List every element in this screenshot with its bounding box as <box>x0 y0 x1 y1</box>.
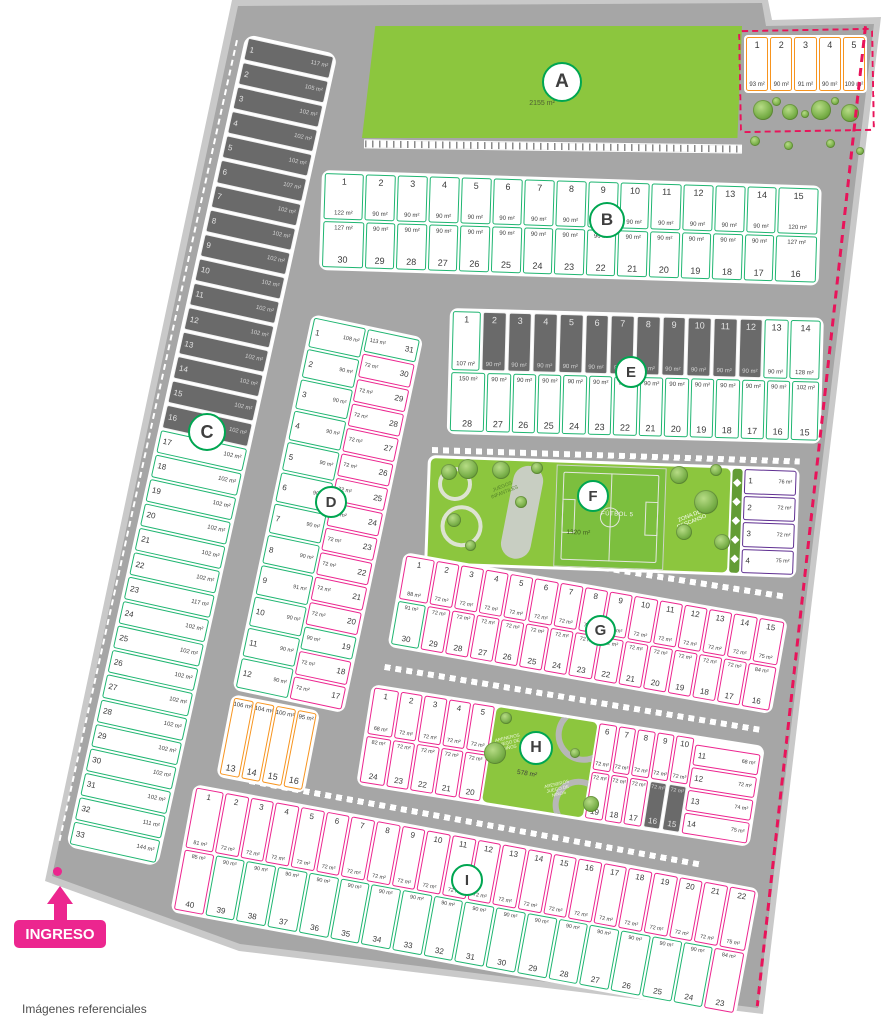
lot-area: 72 m² <box>372 874 387 882</box>
lot-area: 90 m² <box>593 380 608 386</box>
lot-area: 72 m² <box>653 771 667 778</box>
lot-number: 17 <box>162 438 172 448</box>
lot-number: 20 <box>465 788 475 797</box>
lot-area: 90 m² <box>563 364 578 370</box>
lot-number: 24 <box>367 518 377 528</box>
lot-number: 9 <box>671 321 676 330</box>
lot-area: 72 m² <box>220 846 235 854</box>
lot-area: 72 m² <box>612 779 626 786</box>
reference-note: Imágenes referenciales <box>22 1002 147 1016</box>
lot-b1-8[interactable]: 890 m² <box>555 180 586 227</box>
block-b-label: B <box>589 202 625 238</box>
lot-number: 4 <box>233 119 239 128</box>
lot-area: 128 m² <box>795 370 814 376</box>
lot-number: 18 <box>609 811 619 820</box>
lot-area: 72 m² <box>446 738 460 745</box>
lot-area: 90 m² <box>644 381 659 387</box>
lot-number: 29 <box>428 640 438 649</box>
lot-area: 122 m² <box>334 210 353 217</box>
lot-area: 102 m² <box>261 281 280 291</box>
entrance-point <box>53 867 62 876</box>
lot-area: 127 m² <box>334 225 353 232</box>
lot-number: 12 <box>746 323 756 332</box>
lot-area: 90 m² <box>404 213 420 219</box>
lot-area: 107 m² <box>282 183 301 193</box>
block-d-south: 13106 m²14104 m²15100 m²1695 m² <box>216 694 320 794</box>
bench-icon <box>732 517 740 525</box>
tree-icon <box>856 147 864 155</box>
lot-area: 72 m² <box>738 782 752 789</box>
lot-number: 28 <box>388 419 398 429</box>
lot-area: 117 m² <box>190 599 208 608</box>
lot-area: 72 m² <box>343 462 358 470</box>
lot-number: 13 <box>725 190 735 199</box>
lot-area: 72 m² <box>296 860 311 868</box>
lot-number: 23 <box>129 585 139 595</box>
lot-area: 102 m² <box>201 550 220 560</box>
lot-area: 90 m² <box>768 369 783 375</box>
lot-number: 33 <box>75 830 85 840</box>
lot-number: 19 <box>660 878 670 887</box>
lot-number: 33 <box>403 941 413 950</box>
lot-area: 72 m² <box>678 654 693 662</box>
lot-number: 29 <box>528 964 538 973</box>
lot-area: 72 m² <box>592 776 606 783</box>
lot-e1-14[interactable]: 14128 m² <box>789 320 821 380</box>
lot-number: 24 <box>551 661 561 670</box>
lot-area: 102 m² <box>796 385 815 391</box>
lot-number: 29 <box>394 394 404 404</box>
lot-number: 5 <box>569 318 574 327</box>
lot-area: 90 m² <box>665 367 680 373</box>
lot-f-1[interactable]: 176 m² <box>744 469 797 495</box>
lot-e1-2[interactable]: 290 m² <box>481 312 506 372</box>
lot-e2-19[interactable]: 1990 m² <box>689 378 714 438</box>
lot-area: 72 m² <box>348 438 363 446</box>
tree-icon <box>484 742 506 764</box>
lot-area: 68 m² <box>741 760 755 767</box>
lot-e2-23[interactable]: 2390 m² <box>588 376 613 436</box>
lot-number: 26 <box>502 653 512 662</box>
lot-number: 13 <box>715 614 725 623</box>
lot-number: 26 <box>113 658 123 668</box>
lot-area: 102 m² <box>293 134 312 144</box>
lot-area: 72 m² <box>554 633 569 641</box>
lot-area: 68 m² <box>373 726 387 733</box>
lot-area: 90 m² <box>689 237 705 243</box>
lot-number: 5 <box>227 144 233 153</box>
lot-number: 30 <box>401 635 411 644</box>
lot-area: 74 m² <box>734 805 748 812</box>
lot-area: 90 m² <box>588 365 603 371</box>
lot-number: 4 <box>284 808 290 817</box>
lot-area: 150 m² <box>459 376 478 382</box>
block-b: 1122 m²290 m²390 m²490 m²590 m²690 m²790… <box>319 170 822 286</box>
lot-number: 9 <box>410 831 416 840</box>
lot-area: 72 m² <box>327 537 342 545</box>
block-a-label: A <box>542 62 582 102</box>
lot-area: 90 m² <box>436 229 452 235</box>
lot-number: 10 <box>255 608 265 618</box>
lot-b1-2[interactable]: 290 m² <box>365 174 396 221</box>
lot-number: 22 <box>135 560 145 570</box>
lot-e1-1[interactable]: 1107 m² <box>451 311 481 371</box>
lot-e1-13[interactable]: 1390 m² <box>763 319 788 379</box>
lot-area: 104 m² <box>254 706 273 715</box>
lot-b2-17[interactable]: 1790 m² <box>744 234 775 281</box>
lot-e2-15[interactable]: 15102 m² <box>791 381 819 441</box>
lot-number: 13 <box>225 763 237 774</box>
lot-number: 6 <box>222 168 228 177</box>
lot-number: 36 <box>309 924 319 933</box>
lot-b1-3[interactable]: 390 m² <box>397 175 428 222</box>
lot-number: 14 <box>246 767 258 778</box>
lot-b1-11[interactable]: 1190 m² <box>651 183 682 230</box>
lot-area: 90 m² <box>253 866 268 874</box>
lot-number: 27 <box>477 648 487 657</box>
lot-number: 7 <box>537 184 542 193</box>
lot-number: 19 <box>151 487 161 497</box>
lot-number: 20 <box>659 266 669 275</box>
lot-f-4[interactable]: 475 m² <box>741 549 794 575</box>
lot-area: 72 m² <box>530 628 545 636</box>
lot-area: 90 m² <box>472 907 487 915</box>
lot-number: 15 <box>799 428 809 437</box>
lot-number: 27 <box>493 420 503 429</box>
lot-area: 90 m² <box>691 367 706 373</box>
lot-area: 90 m² <box>306 523 321 531</box>
lot-number: 32 <box>80 805 90 815</box>
lot-area: 102 m² <box>223 452 242 462</box>
lot-b2-24[interactable]: 2490 m² <box>522 227 553 274</box>
lot-e1-6[interactable]: 690 m² <box>584 315 609 375</box>
lot-b2-23[interactable]: 2390 m² <box>554 228 585 275</box>
tree-icon <box>515 496 527 508</box>
lot-number: 3 <box>469 571 475 580</box>
lot-area: 72 m² <box>672 774 686 781</box>
tree-icon <box>694 490 718 514</box>
lot-g1-15[interactable]: 1575 m² <box>752 618 785 666</box>
lot-area: 102 m² <box>244 354 263 364</box>
lot-area: 90 m² <box>299 554 314 562</box>
lot-area: 72 m² <box>633 632 648 640</box>
lot-number: 21 <box>645 424 655 433</box>
lot-area: 113 m² <box>369 339 386 348</box>
lot-number: 6 <box>281 484 287 493</box>
lot-e2-18[interactable]: 1890 m² <box>715 379 740 439</box>
lot-area: 90 m² <box>716 368 731 374</box>
lot-number: 39 <box>216 906 226 915</box>
lot-number: 10 <box>630 187 640 196</box>
lot-number: 4 <box>442 181 447 190</box>
lot-area: 90 m² <box>222 861 237 869</box>
lot-number: 30 <box>91 756 101 766</box>
lot-b2-26[interactable]: 2690 m² <box>459 225 490 272</box>
lot-b2-19[interactable]: 1990 m² <box>680 232 711 279</box>
lot-number: 9 <box>618 597 624 606</box>
lot-number: 9 <box>262 577 268 586</box>
lot-number: 17 <box>747 427 757 436</box>
lot-e1-4[interactable]: 490 m² <box>533 313 558 373</box>
lot-area: 102 m² <box>147 795 166 805</box>
tree-icon <box>531 462 543 474</box>
lot-area: 90 m² <box>746 384 761 390</box>
lot-area: 102 m² <box>228 428 247 438</box>
lot-e1-11[interactable]: 1190 m² <box>712 318 737 378</box>
lot-area: 72 m² <box>470 742 484 749</box>
lot-number: 14 <box>686 820 696 829</box>
lot-b2-30[interactable]: 30127 m² <box>322 221 364 268</box>
lot-b1-4[interactable]: 490 m² <box>428 176 459 223</box>
lot-area: 90 m² <box>659 942 674 950</box>
lot-area: 102 m² <box>255 305 274 315</box>
lot-area: 90 m² <box>286 616 301 624</box>
lot-b2-20[interactable]: 2090 m² <box>649 231 680 278</box>
lot-area: 90 m² <box>325 430 340 438</box>
tree-icon <box>676 524 692 540</box>
lot-b1-1[interactable]: 1122 m² <box>323 173 364 220</box>
lot-area: 90 m² <box>436 214 452 220</box>
lot-e2-16[interactable]: 1690 m² <box>766 380 791 440</box>
lot-area: 90 m² <box>467 215 483 221</box>
lot-number: 15 <box>793 192 803 201</box>
lot-b2-18[interactable]: 1890 m² <box>712 233 743 280</box>
lot-area: 90 m² <box>306 636 321 644</box>
lot-number: 3 <box>410 180 415 189</box>
lot-number: 13 <box>690 797 700 806</box>
lot-number: 10 <box>680 740 690 749</box>
lot-area: 72 m² <box>311 611 326 619</box>
lot-area: 72 m² <box>444 752 458 759</box>
lot-area: 72 m² <box>295 685 310 693</box>
lot-area: 90 m² <box>534 918 549 926</box>
lot-e2-28[interactable]: 28150 m² <box>450 372 486 432</box>
lot-number: 7 <box>624 731 630 740</box>
lot-number: 19 <box>696 425 706 434</box>
lot-b2-27[interactable]: 2790 m² <box>428 224 459 271</box>
lot-number: 8 <box>211 217 217 226</box>
block-a-area: 2155 m² <box>529 100 555 108</box>
lot-area: 91 m² <box>292 585 307 593</box>
lot-area: 90 m² <box>721 223 737 229</box>
lot-number: 9 <box>205 242 211 251</box>
lot-number: 6 <box>543 584 549 593</box>
lot-number: 1 <box>342 178 347 187</box>
lot-area: 72 m² <box>456 615 471 623</box>
lot-b2-29[interactable]: 2990 m² <box>365 222 396 269</box>
lot-area: 72 m² <box>359 388 374 396</box>
lot-b2-21[interactable]: 2190 m² <box>617 230 648 277</box>
lot-area: 90 m² <box>753 224 769 230</box>
lot-number: 27 <box>383 444 393 454</box>
lot-area: 90 m² <box>628 936 643 944</box>
lot-number: 11 <box>665 605 675 614</box>
lot-number: 8 <box>268 546 274 555</box>
lot-number: 23 <box>576 666 586 675</box>
lot-f-2[interactable]: 272 m² <box>743 496 796 522</box>
lot-area: 102 m² <box>277 207 296 217</box>
lot-area: 72 m² <box>727 663 742 671</box>
lot-area: 102 m² <box>174 673 193 683</box>
lot-area: 72 m² <box>650 785 664 792</box>
lot-number: 16 <box>647 817 657 826</box>
lot-e1-5[interactable]: 590 m² <box>558 314 583 374</box>
lot-area: 90 m² <box>562 233 578 239</box>
lot-number: 16 <box>167 413 177 423</box>
lot-area: 72 m² <box>498 897 513 905</box>
lot-number: 22 <box>595 264 605 273</box>
lot-number: 5 <box>288 453 294 462</box>
lot-number: 23 <box>564 263 574 272</box>
lot-area: 72 m² <box>658 636 673 644</box>
lot-area: 102 m² <box>168 697 187 707</box>
lot-area: 72 m² <box>732 649 747 657</box>
lot-number: 7 <box>275 515 281 524</box>
lot-b2-28[interactable]: 2890 m² <box>396 223 427 270</box>
lot-number: 21 <box>710 887 720 896</box>
lot-e2-17[interactable]: 1790 m² <box>740 380 765 440</box>
lot-area: 102 m² <box>217 477 236 487</box>
lot-e1-3[interactable]: 390 m² <box>507 313 532 373</box>
lot-number: 5 <box>480 708 486 717</box>
lot-number: 2 <box>408 697 414 706</box>
lot-f-3[interactable]: 372 m² <box>742 522 795 548</box>
lot-e1-9[interactable]: 990 m² <box>661 317 686 377</box>
lot-area: 90 m² <box>503 913 518 921</box>
lot-number: 21 <box>627 265 637 274</box>
tree-icon <box>710 464 722 476</box>
lot-area: 102 m² <box>272 232 291 242</box>
lot-number: 8 <box>646 320 651 329</box>
lot-area: 90 m² <box>441 901 456 909</box>
lot-number: 34 <box>372 935 382 944</box>
lot-number: 20 <box>346 617 356 627</box>
lot-area: 88 m² <box>407 592 422 600</box>
lot-area: 120 m² <box>788 225 807 232</box>
lot-e2-24[interactable]: 2490 m² <box>562 375 587 435</box>
lot-e2-25[interactable]: 2590 m² <box>537 374 562 434</box>
lot-number: 11 <box>721 322 731 331</box>
lot-number: 2 <box>308 360 314 369</box>
lot-number: 7 <box>568 588 574 597</box>
lot-area: 72 m² <box>674 930 689 938</box>
lot-area: 90 m² <box>720 238 736 244</box>
lot-b1-13[interactable]: 1390 m² <box>714 185 745 232</box>
lot-number: 32 <box>434 947 444 956</box>
lot-b1-5[interactable]: 590 m² <box>460 177 491 224</box>
lot-number: 3 <box>258 803 264 812</box>
lot-number: 11 <box>195 291 205 301</box>
lot-b1-14[interactable]: 1490 m² <box>746 186 777 233</box>
lot-number: 18 <box>699 688 709 697</box>
lot-number: 4 <box>543 317 548 326</box>
lot-number: 38 <box>247 912 257 921</box>
entrance-badge[interactable]: INGRESO <box>14 920 106 948</box>
lot-number: 2 <box>243 70 249 79</box>
lot-area: 72 m² <box>481 619 496 627</box>
block-e-label: E <box>615 356 647 388</box>
lot-b1-15[interactable]: 15120 m² <box>778 187 819 234</box>
lot-area: 72 m² <box>777 506 791 512</box>
lot-area: 90 m² <box>596 930 611 938</box>
lot-area: 90 m² <box>499 216 515 222</box>
lot-number: 25 <box>372 493 382 503</box>
lot-area: 72 m² <box>548 906 563 914</box>
lot-number: 10 <box>640 601 650 610</box>
lot-number: 3 <box>238 95 244 104</box>
lot-area: 72 m² <box>364 363 379 371</box>
lot-area: 72 m² <box>702 659 717 667</box>
lot-number: 16 <box>584 864 594 873</box>
lot-number: 26 <box>621 981 631 990</box>
lot-e1-12[interactable]: 1290 m² <box>738 319 763 379</box>
lot-number: 23 <box>393 777 403 786</box>
lot-number: 11 <box>248 639 258 649</box>
lot-area: 90 m² <box>319 461 334 469</box>
lot-e2-21[interactable]: 2190 m² <box>638 377 663 437</box>
lot-area: 90 m² <box>499 231 515 237</box>
lot-number: 4 <box>745 557 750 565</box>
lot-number: 19 <box>675 683 685 692</box>
lot-b2-16[interactable]: 16127 m² <box>775 235 817 282</box>
lot-b2-25[interactable]: 2590 m² <box>491 226 522 273</box>
lot-number: 18 <box>635 873 645 882</box>
lot-number: 25 <box>652 987 662 996</box>
lot-number: 15 <box>267 771 279 782</box>
lot-area: 91 m² <box>404 606 419 614</box>
lot-area: 72 m² <box>434 597 449 605</box>
lot-number: 21 <box>140 536 150 546</box>
lot-area: 90 m² <box>339 368 354 376</box>
lot-number: 11 <box>697 751 706 760</box>
lot-g1-1[interactable]: 188 m² <box>399 555 435 603</box>
lot-number: 19 <box>690 267 700 276</box>
tree-icon <box>784 141 793 150</box>
lot-number: 28 <box>102 707 112 717</box>
lot-area: 90 m² <box>563 218 579 224</box>
lot-b1-6[interactable]: 690 m² <box>492 178 523 225</box>
lot-e2-27[interactable]: 2790 m² <box>486 373 511 433</box>
tree-icon <box>447 513 461 527</box>
lot-number: 24 <box>368 773 378 782</box>
lot-number: 15 <box>559 859 569 868</box>
lot-area: 102 m² <box>299 109 318 119</box>
lot-e2-20[interactable]: 2090 m² <box>664 378 689 438</box>
lot-b1-7[interactable]: 790 m² <box>524 179 555 226</box>
bench-icon <box>731 536 739 544</box>
lot-area: 117 m² <box>310 60 328 69</box>
lot-area: 127 m² <box>787 240 806 247</box>
lot-area: 90 m² <box>720 383 735 389</box>
lot-number: 30 <box>399 370 409 380</box>
lot-area: 90 m² <box>332 399 347 407</box>
lot-number: 8 <box>569 185 574 194</box>
lot-area: 72 m² <box>271 855 286 863</box>
lot-area: 72 m² <box>459 601 474 609</box>
lot-area: 90 m² <box>531 232 547 238</box>
lot-number: 37 <box>278 918 288 927</box>
lot-number: 18 <box>722 268 732 277</box>
block-h-label: H <box>519 731 553 765</box>
lot-g2-16[interactable]: 1684 m² <box>741 663 777 711</box>
lot-number: 25 <box>501 261 511 270</box>
lot-number: 4 <box>493 575 499 584</box>
lot-e1-10[interactable]: 1090 m² <box>687 317 712 377</box>
lot-number: 12 <box>693 189 703 198</box>
lot-b1-12[interactable]: 1290 m² <box>682 184 713 231</box>
lot-e2-26[interactable]: 2690 m² <box>511 374 536 434</box>
lot-number: 28 <box>453 644 463 653</box>
